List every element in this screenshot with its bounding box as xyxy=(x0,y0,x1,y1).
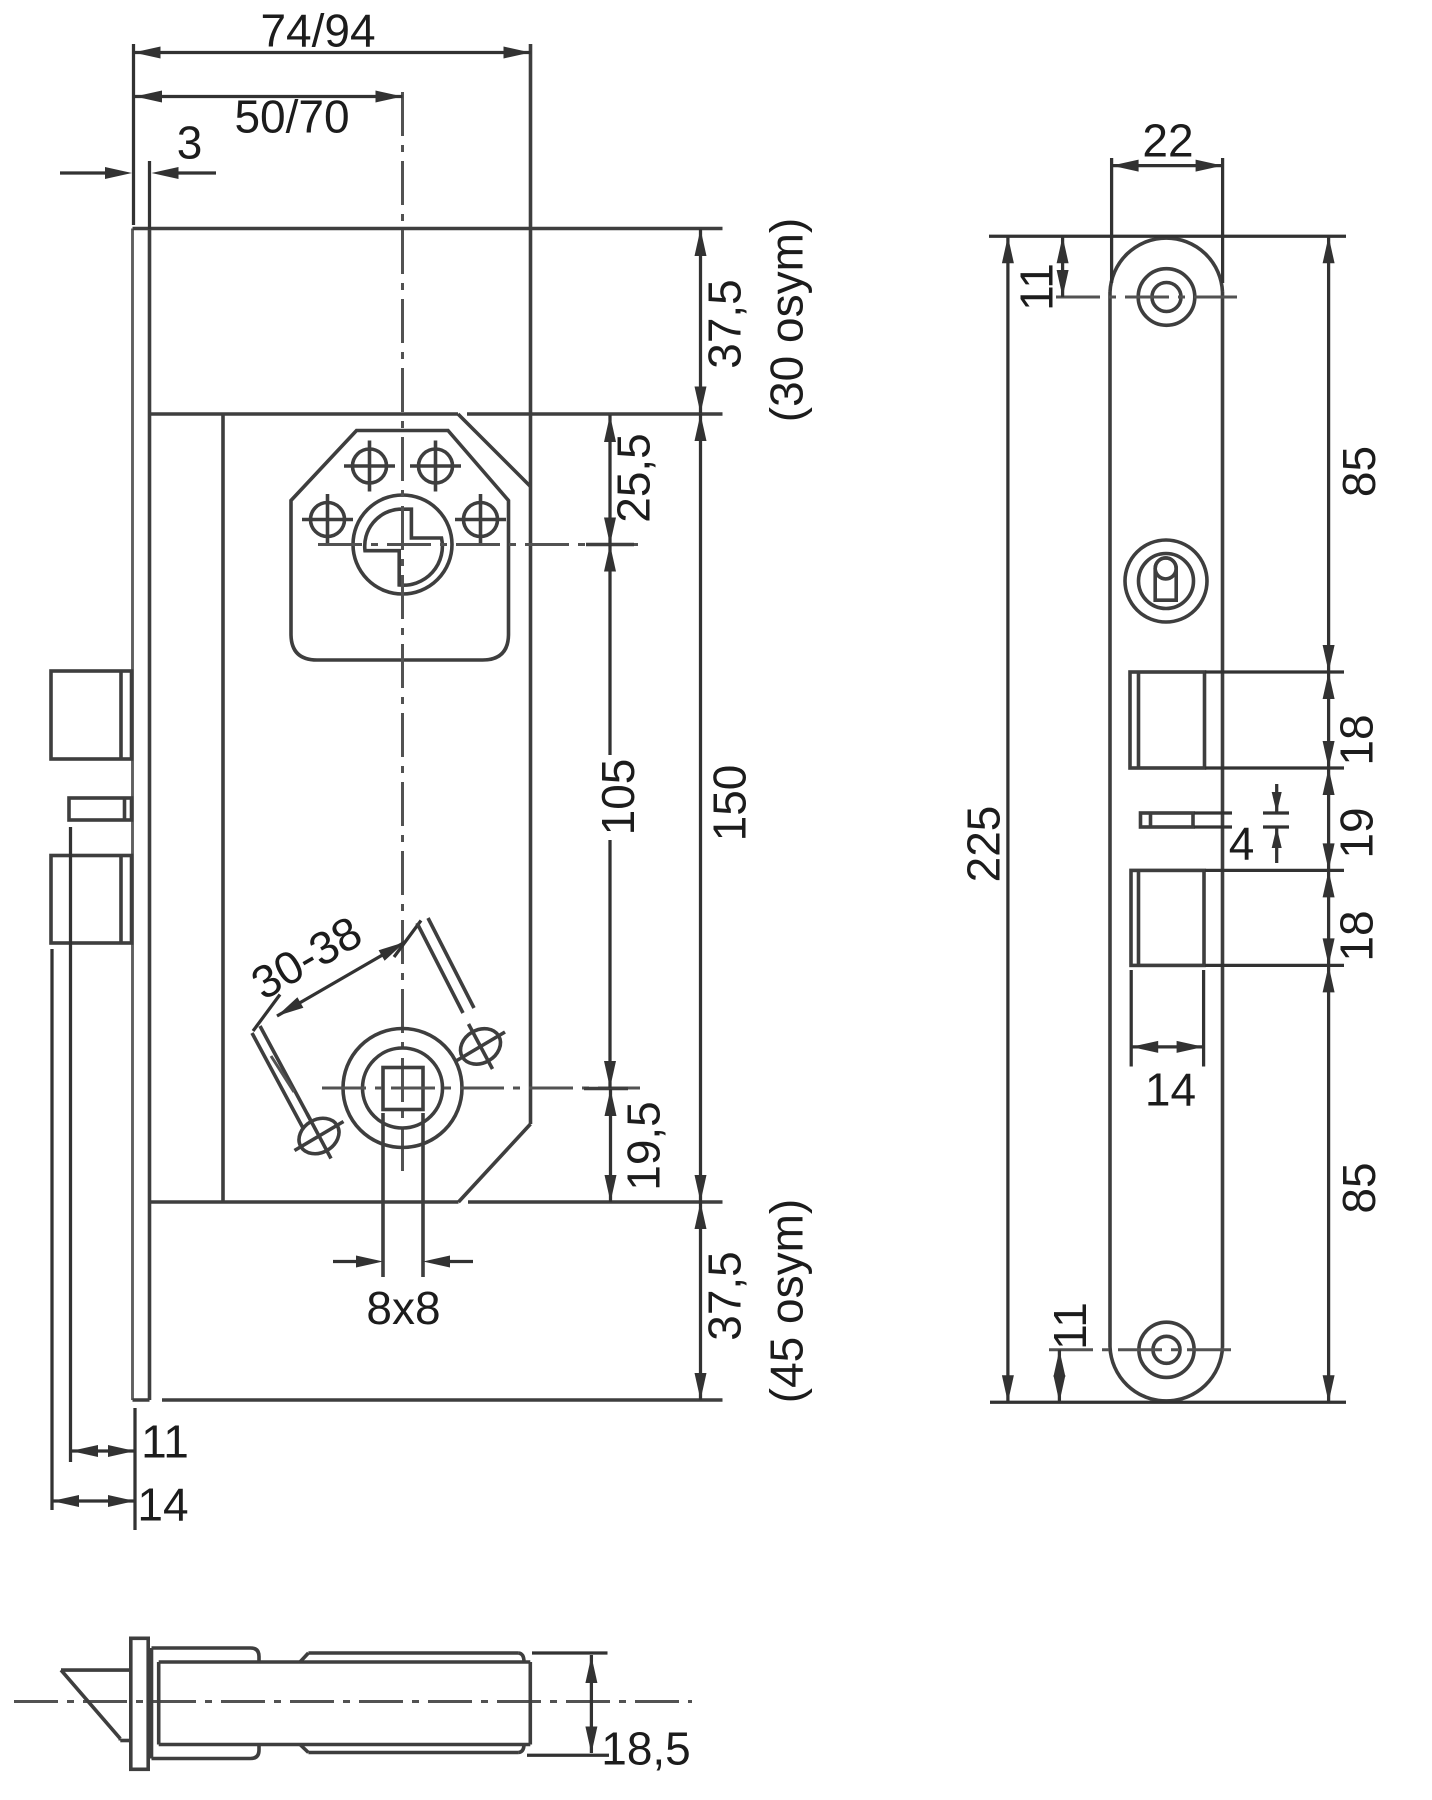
svg-text:4: 4 xyxy=(1229,818,1255,870)
svg-text:14: 14 xyxy=(137,1479,188,1531)
svg-text:11: 11 xyxy=(141,1416,189,1468)
svg-text:18,5: 18,5 xyxy=(601,1723,691,1775)
svg-text:(30 osym): (30 osym) xyxy=(761,218,813,422)
svg-text:14: 14 xyxy=(1145,1064,1196,1116)
svg-text:225: 225 xyxy=(958,806,1010,883)
svg-text:19,5: 19,5 xyxy=(618,1101,670,1191)
svg-text:50/70: 50/70 xyxy=(234,91,349,143)
svg-text:25,5: 25,5 xyxy=(608,433,660,523)
svg-text:18: 18 xyxy=(1331,714,1383,765)
svg-text:37,5: 37,5 xyxy=(699,1251,751,1341)
svg-text:150: 150 xyxy=(704,765,756,842)
svg-text:22: 22 xyxy=(1142,115,1193,167)
svg-text:11: 11 xyxy=(1044,1302,1096,1350)
svg-text:18: 18 xyxy=(1331,910,1383,961)
svg-text:19: 19 xyxy=(1331,807,1383,858)
svg-text:85: 85 xyxy=(1333,1162,1385,1213)
svg-text:3: 3 xyxy=(177,117,203,169)
svg-text:74/94: 74/94 xyxy=(260,5,375,57)
svg-text:11: 11 xyxy=(1011,263,1063,311)
svg-text:(45 osym): (45 osym) xyxy=(761,1199,813,1403)
svg-text:8x8: 8x8 xyxy=(366,1282,440,1334)
svg-text:85: 85 xyxy=(1333,446,1385,497)
svg-text:37,5: 37,5 xyxy=(699,279,751,369)
svg-text:105: 105 xyxy=(592,759,644,836)
